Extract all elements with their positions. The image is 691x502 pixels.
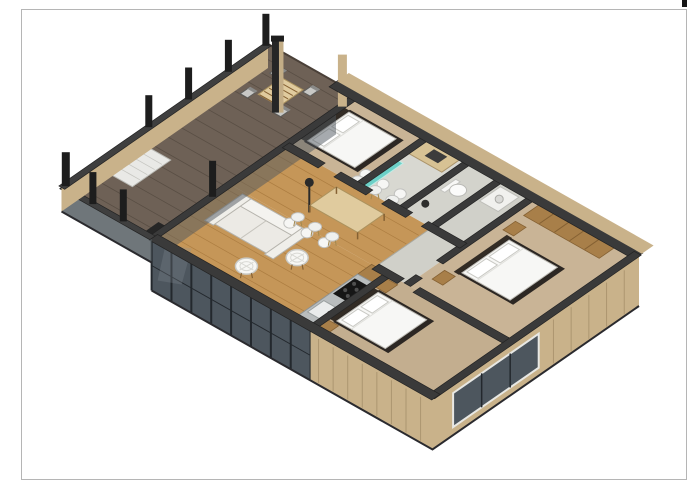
- deck-post: [145, 95, 152, 127]
- deck-post-corner: [62, 152, 70, 186]
- deck-post: [262, 14, 269, 46]
- glass-wall-post: [209, 161, 216, 197]
- deck-post: [120, 189, 127, 221]
- deck-post: [89, 172, 96, 204]
- page: [0, 0, 691, 502]
- floor-lamp-shade: [305, 178, 314, 187]
- chimney-cap: [271, 36, 284, 42]
- washer-door: [495, 195, 503, 203]
- dining-chair: [309, 222, 322, 231]
- chimney-column-side: [279, 41, 284, 113]
- dining-chair: [326, 232, 339, 241]
- burner: [352, 282, 356, 286]
- dining-chair: [291, 213, 304, 222]
- toilet: [450, 184, 467, 196]
- burner: [343, 288, 347, 292]
- floor-plan-rendering: [0, 0, 691, 502]
- deck-post: [185, 68, 192, 100]
- bath-plant: [421, 200, 429, 208]
- chimney-column: [272, 41, 279, 113]
- deck-post: [225, 40, 232, 72]
